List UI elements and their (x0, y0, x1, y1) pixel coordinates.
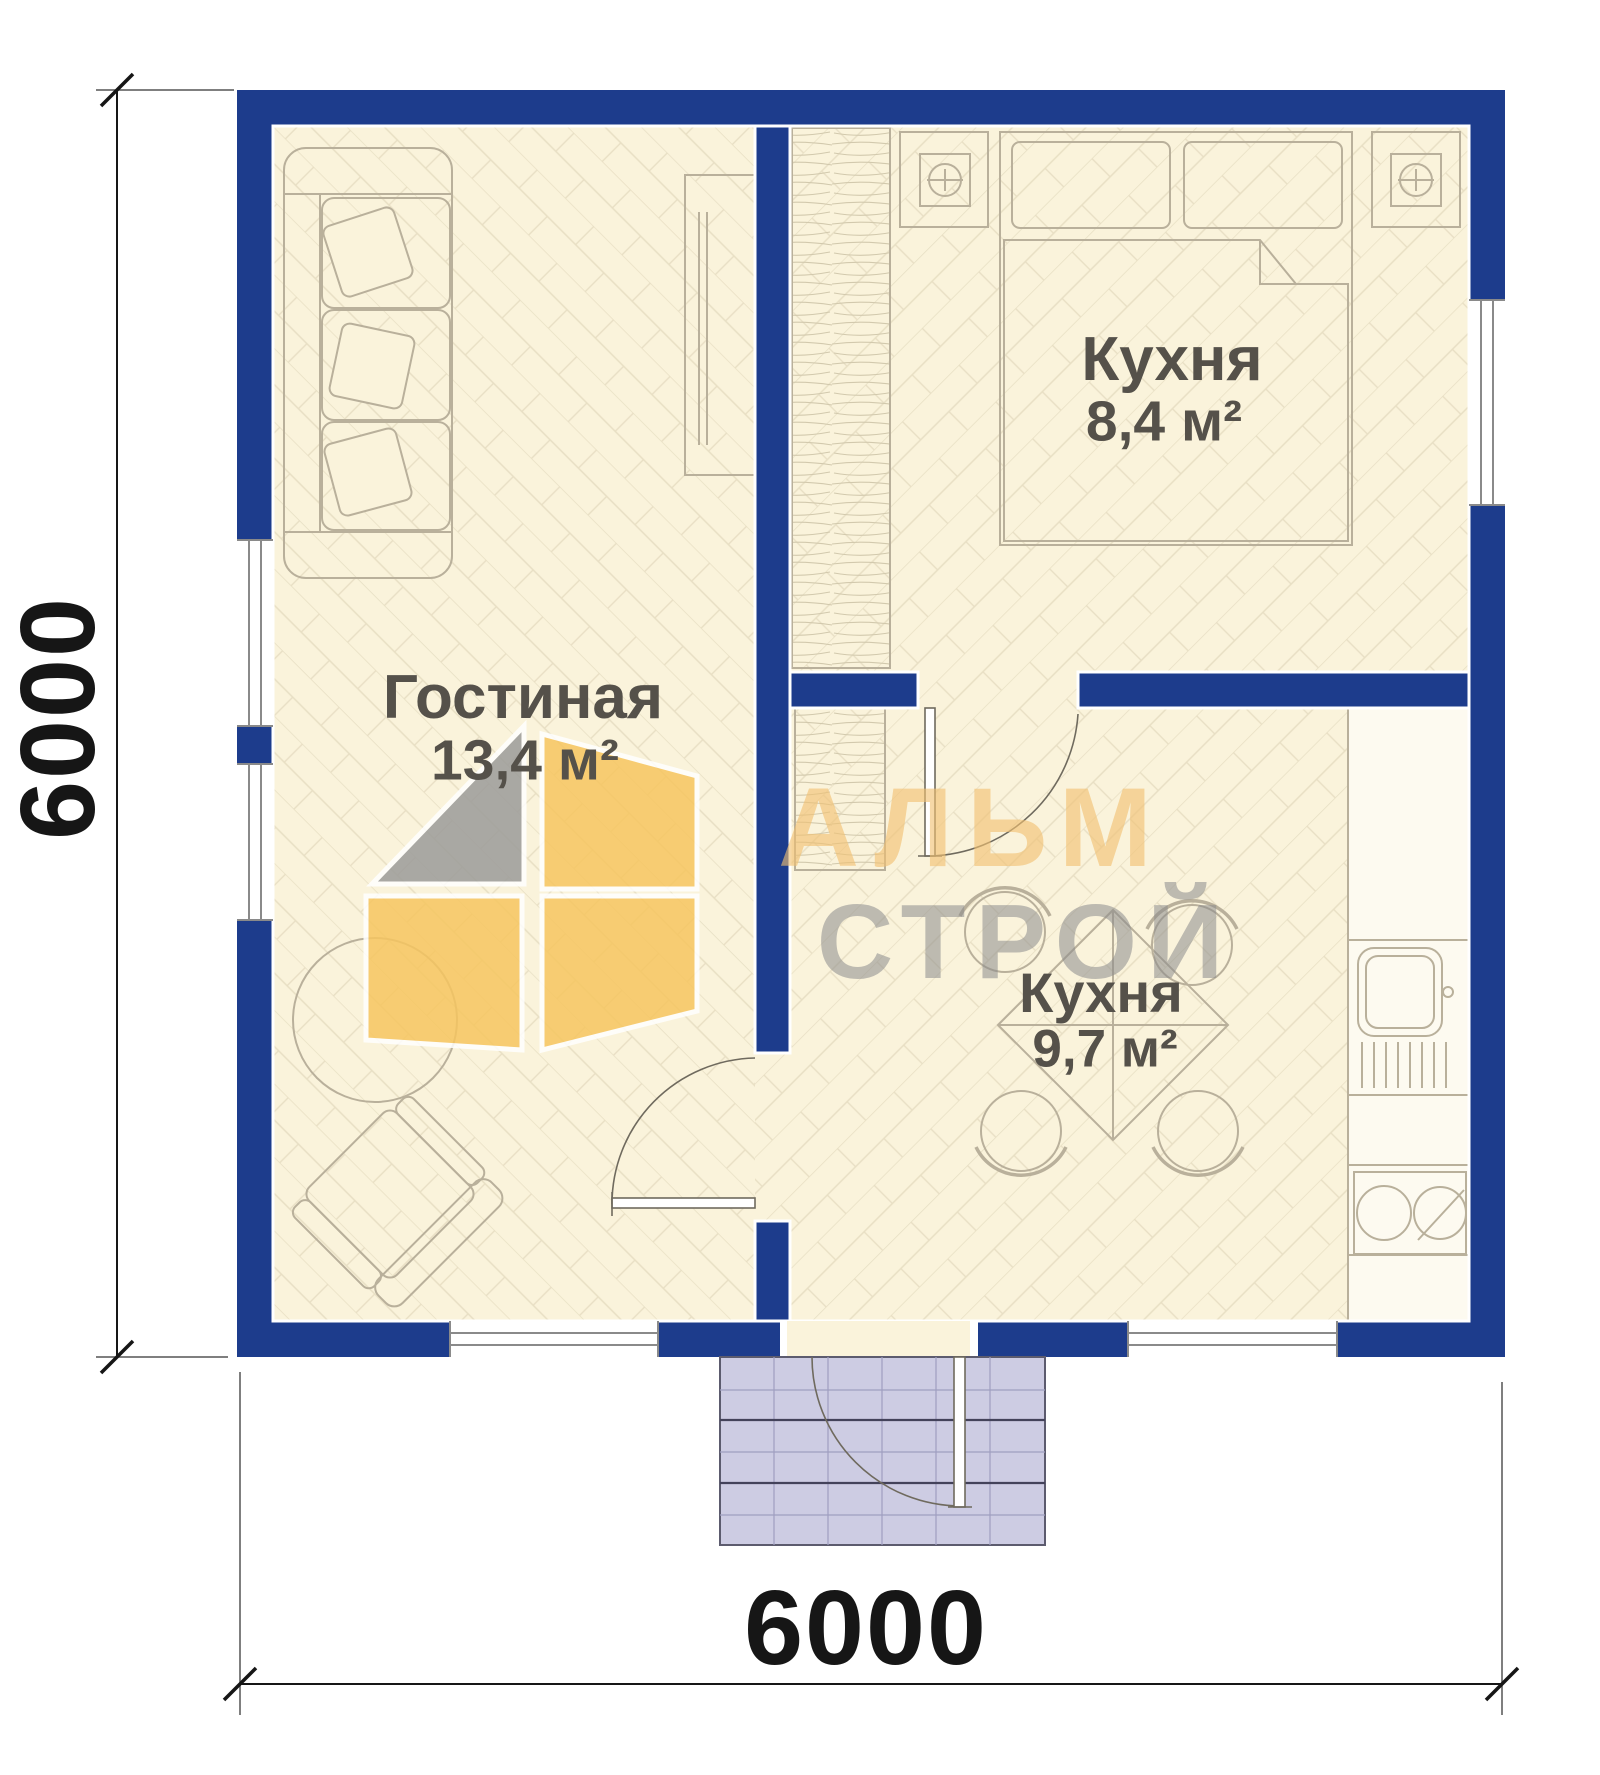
wardrobe (792, 128, 890, 668)
room-label-living: Гостиная (383, 667, 663, 729)
room-label-bedroom: Кухня (1081, 329, 1262, 391)
dimension-label-width: 6000 (744, 1575, 988, 1681)
entrance-opening (780, 1321, 978, 1357)
room-area-living: 13,4 м² (431, 733, 619, 790)
dimension-label-height: 6000 (5, 596, 111, 840)
window (1128, 1321, 1337, 1357)
room-label-kitchen: Кухня (1019, 965, 1183, 1021)
watermark-line1: АЛЬМ (778, 772, 1166, 884)
window (237, 540, 273, 726)
room-area-bedroom: 8,4 м² (1086, 394, 1242, 451)
kitchen-counter (1348, 708, 1469, 1321)
window (450, 1321, 658, 1357)
porch (720, 1357, 1045, 1545)
floor-plan-canvas: АЛЬМ СТРОЙ Гостиная 13,4 м² Кухня 8,4 м²… (0, 0, 1600, 1775)
window (1469, 300, 1505, 505)
window (237, 764, 273, 920)
room-area-kitchen: 9,7 м² (1032, 1023, 1177, 1076)
